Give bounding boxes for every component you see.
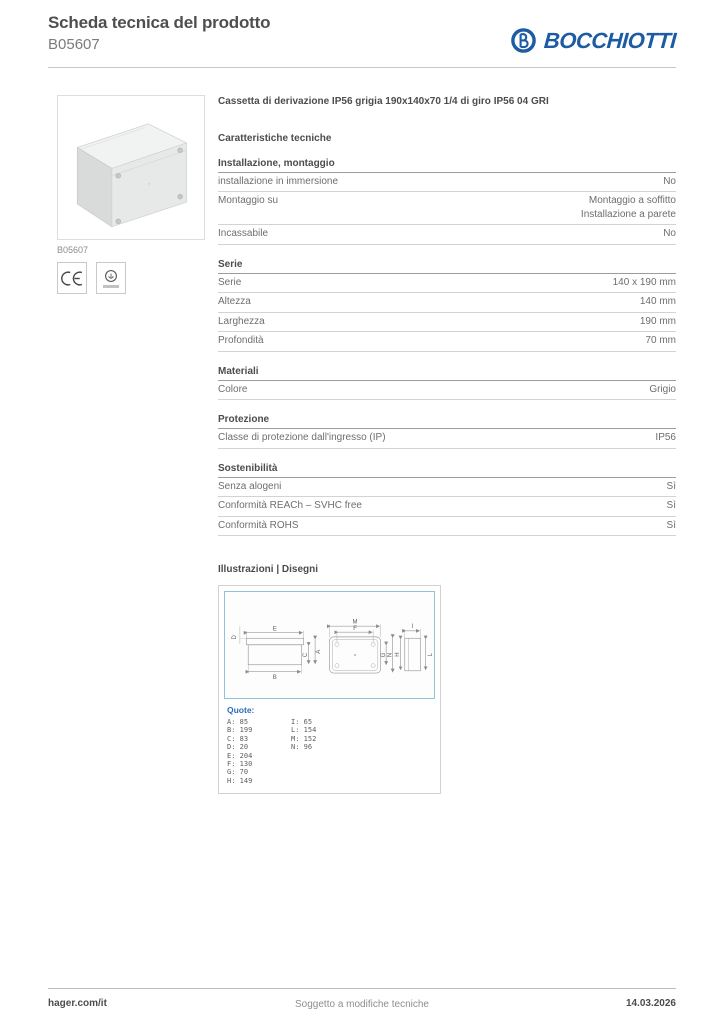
dim-label-a: A [316,650,322,654]
spec-label: Senza alogeni [218,480,281,494]
table-row: Larghezza 190 mm [218,313,676,333]
brand-logo: BOCCHIOTTI [510,27,676,54]
spec-value: 140 x 190 mm [253,276,676,290]
dimension-item: F: 130 [227,760,291,768]
spec-value: 190 mm [277,315,676,329]
spec-label: Colore [218,383,247,397]
spec-label: Profondità [218,334,264,348]
footer-divider [48,988,676,989]
spec-content: Cassetta di derivazione IP56 grigia 190x… [218,95,676,794]
table-row: Senza alogeni Sì [218,478,676,498]
dim-label-i: I [412,624,414,630]
dimension-item: G: 70 [227,768,291,776]
dimension-item: H: 149 [227,777,291,785]
footer-note: Soggetto a modifiche tecniche [0,999,724,1010]
dim-label-m: M [353,619,358,625]
section-protezione: Protezione Classe di protezione dall'ing… [218,414,676,449]
certification-mark-text [103,285,119,288]
technical-drawing: D E B C A M F G N I H L [224,591,435,699]
certification-mark-icon [96,262,126,294]
section-title: Sostenibilità [218,463,676,478]
header-divider [48,67,676,68]
spec-label: Conformità ROHS [218,519,299,533]
page-title: Scheda tecnica del prodotto [48,13,270,33]
spec-value: No [350,175,676,189]
spec-value: Sì [374,499,676,513]
dimension-item: A: 85 [227,718,291,726]
spec-label: Montaggio su [218,194,278,208]
table-row: Altezza 140 mm [218,293,676,313]
dim-label-c: C [303,652,309,657]
quote-label: Quote: [227,705,435,715]
section-title: Materiali [218,366,676,381]
dimension-item: D: 20 [227,743,291,751]
dimension-item: C: 83 [227,735,291,743]
dimension-item: M: 152 [291,735,316,743]
dim-label-d: D [232,635,238,640]
section-materiali: Materiali Colore Grigio [218,366,676,401]
spec-value: 70 mm [276,334,676,348]
dim-label-f: F [353,626,357,632]
table-row: Serie 140 x 190 mm [218,274,676,294]
table-row: Montaggio su Montaggio a soffitto Instal… [218,192,676,225]
section-sostenibilita: Sostenibilità Senza alogeni Sì Conformit… [218,463,676,537]
product-code: B05607 [48,36,100,53]
section-serie: Serie Serie 140 x 190 mm Altezza 140 mm … [218,259,676,352]
table-row: installazione in immersione No [218,173,676,193]
brand-name: BOCCHIOTTI [543,28,677,54]
dim-label-l: L [428,652,434,656]
spec-label: Altezza [218,295,251,309]
dim-label-n: N [387,653,393,657]
spec-label: Larghezza [218,315,265,329]
table-row: Colore Grigio [218,381,676,401]
ce-mark-icon [57,262,87,294]
dim-label-g: G [381,652,387,657]
product-name: Cassetta di derivazione IP56 grigia 190x… [218,95,676,109]
section-title: Serie [218,259,676,274]
dimension-item: B: 199 [227,726,291,734]
technical-drawing-box: D E B C A M F G N I H L Quote: A: 85 [218,585,441,794]
dimension-column-1: A: 85 B: 199 C: 83 D: 20 E: 204 F: 130 G… [227,718,291,785]
dim-label-h: H [395,652,401,656]
dimension-item: N: 96 [291,743,316,751]
footer-date: 14.03.2026 [626,998,676,1009]
dimension-list: A: 85 B: 199 C: 83 D: 20 E: 204 F: 130 G… [227,718,435,785]
brand-logo-icon [510,27,537,54]
table-row: Conformità ROHS Sì [218,517,676,537]
spec-label: Incassabile [218,227,268,241]
spec-label: Classe di protezione dall'ingresso (IP) [218,431,386,445]
dim-label-e: E [273,626,277,632]
table-row: Conformità REACh – SVHC free Sì [218,497,676,517]
dimension-item: L: 154 [291,726,316,734]
section-title: Installazione, montaggio [218,158,676,173]
table-row: Profondità 70 mm [218,332,676,352]
spec-value: 140 mm [263,295,676,309]
dimension-item: I: 65 [291,718,316,726]
table-row: Incassabile No [218,225,676,245]
section-title: Protezione [218,414,676,429]
spec-value: Grigio [259,383,676,397]
spec-label: Conformità REACh – SVHC free [218,499,362,513]
junction-box-illustration [62,102,200,234]
spec-value: Montaggio a soffitto Installazione a par… [290,194,676,221]
spec-label: Serie [218,276,241,290]
table-row: Classe di protezione dall'ingresso (IP) … [218,429,676,449]
spec-value: Sì [311,519,676,533]
spec-value: IP56 [398,431,676,445]
product-image-caption: B05607 [57,245,88,255]
illustrations-heading: Illustrazioni | Disegni [218,564,676,575]
spec-value: Sì [293,480,676,494]
product-image [57,95,205,240]
section-installazione-montaggio: Installazione, montaggio installazione i… [218,158,676,245]
dimension-column-2: I: 65 L: 154 M: 152 N: 96 [291,718,316,785]
spec-label: installazione in immersione [218,175,338,189]
spec-value: No [280,227,676,241]
dimension-item: E: 204 [227,752,291,760]
characteristics-heading: Caratteristiche tecniche [218,133,676,144]
dim-label-b: B [273,675,277,681]
